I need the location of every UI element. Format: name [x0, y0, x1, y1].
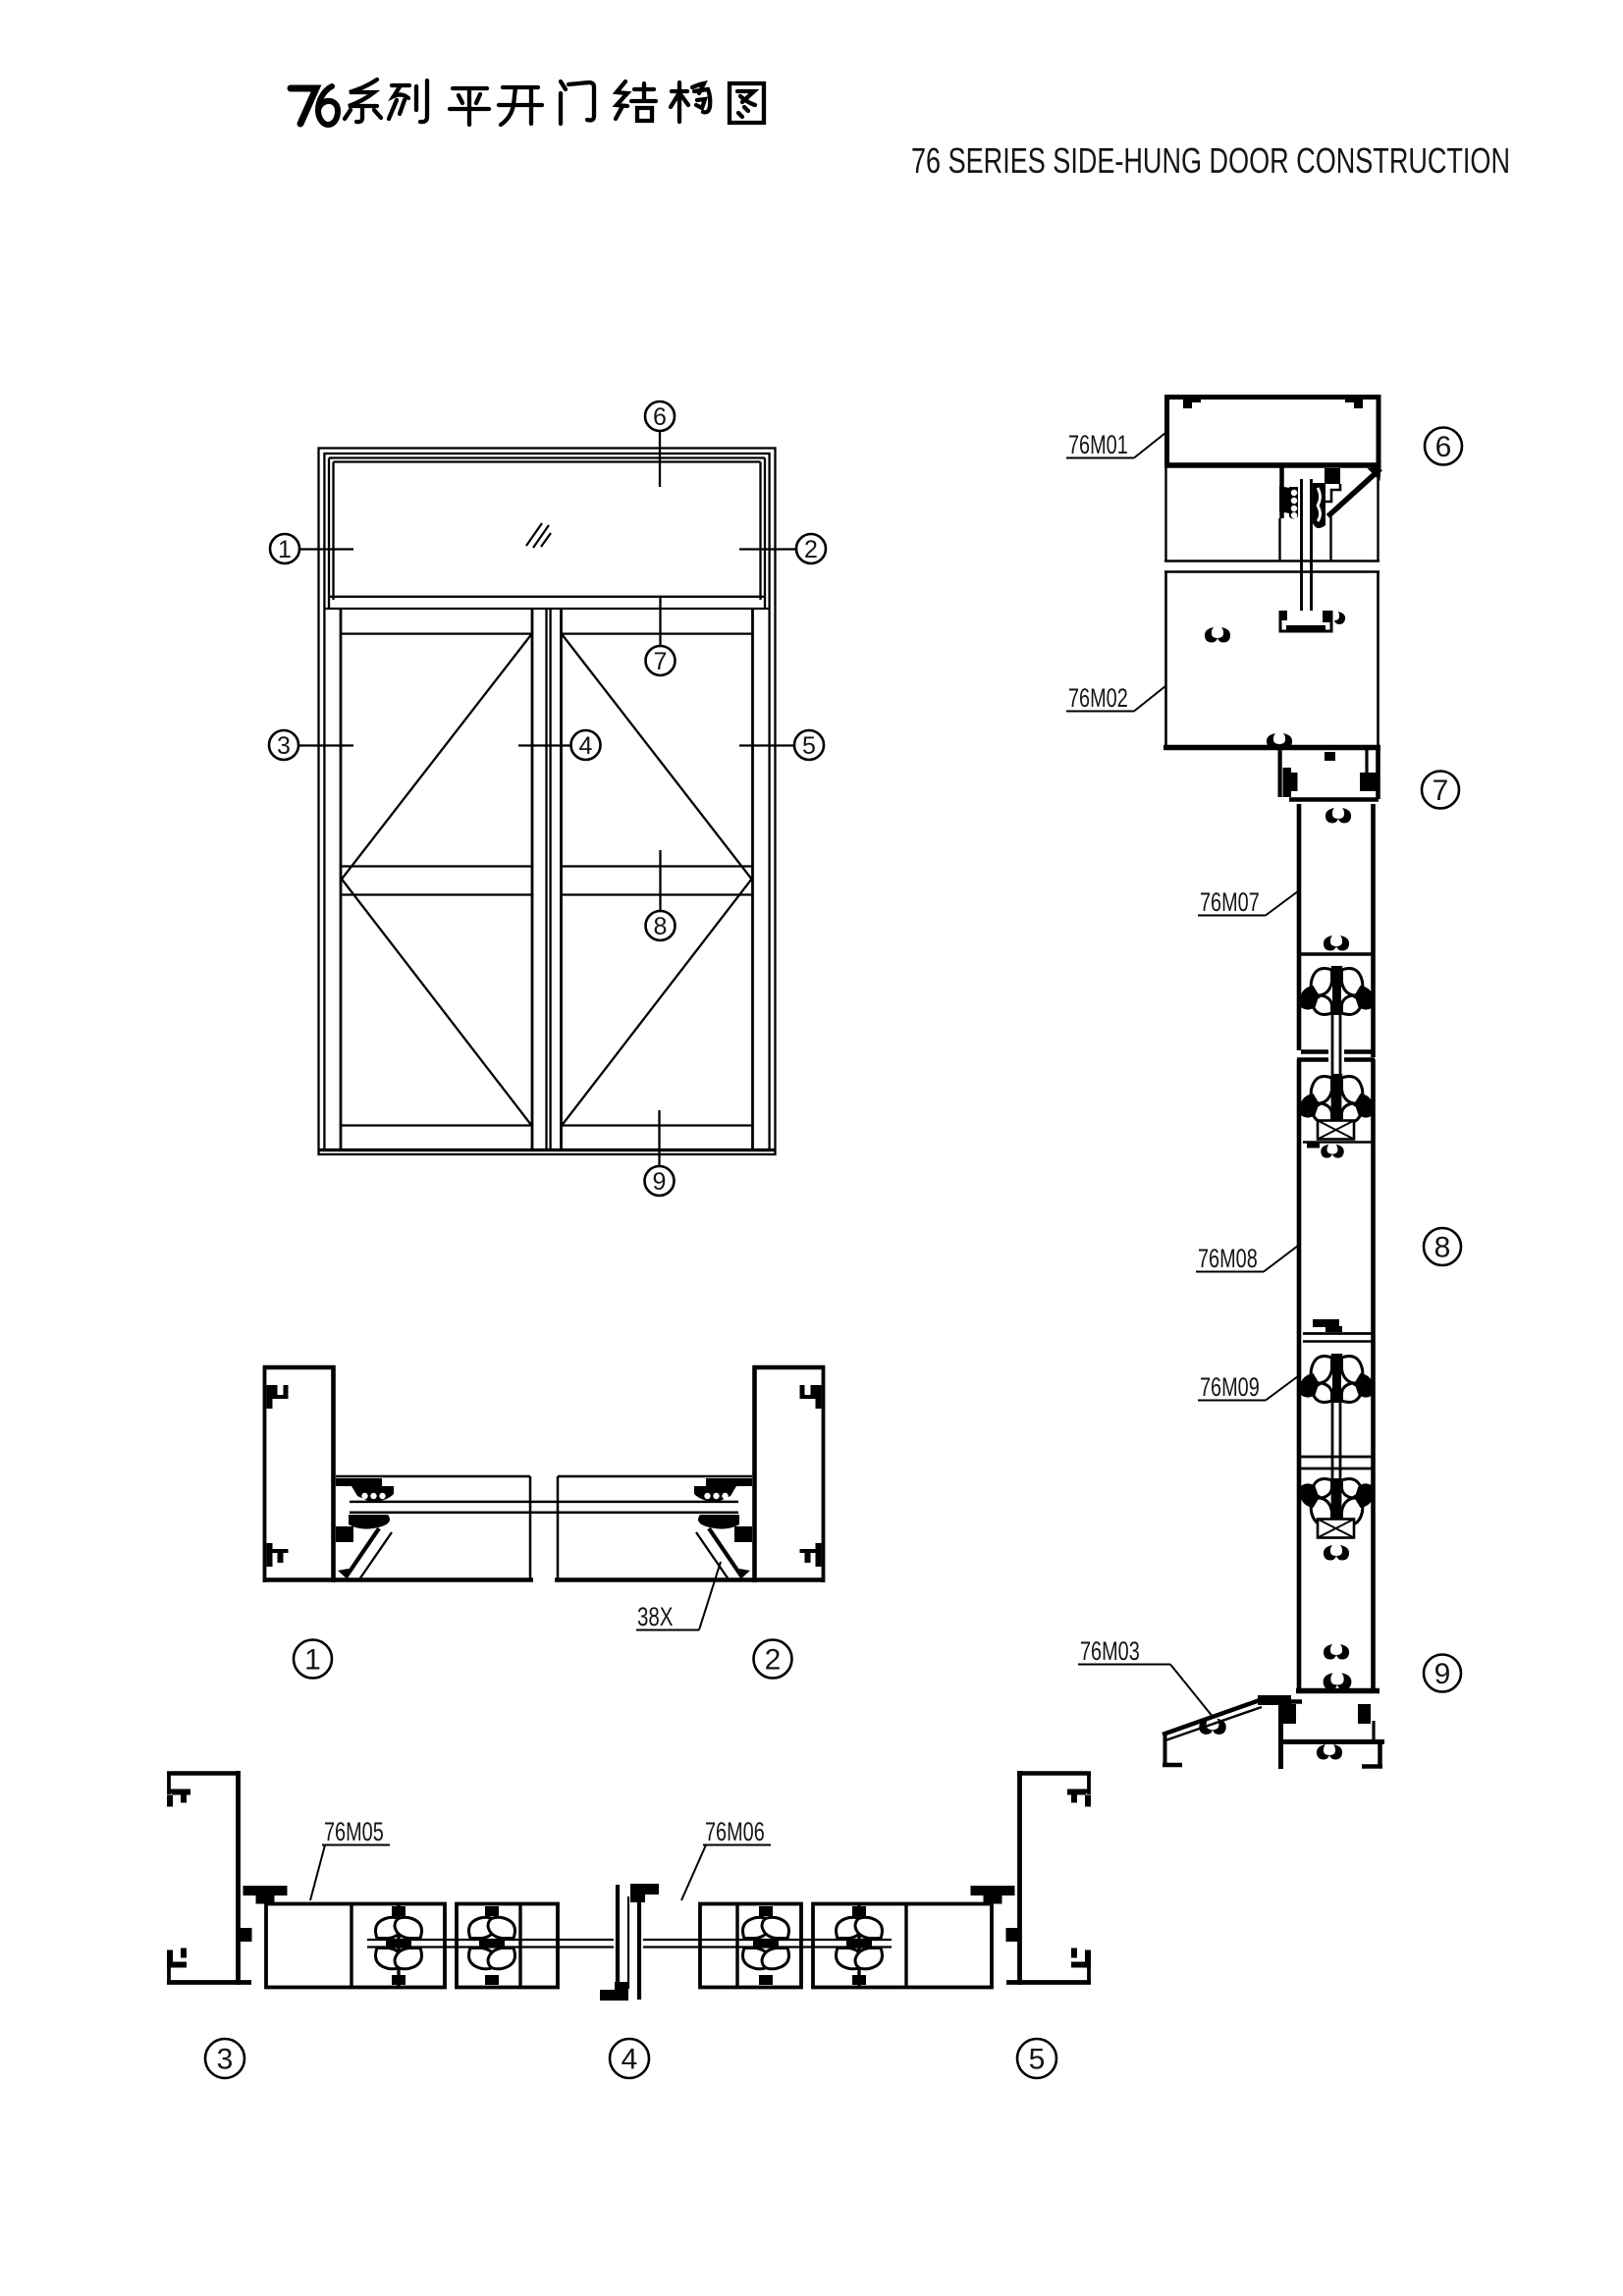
- svg-text:8: 8: [1434, 1232, 1451, 1264]
- svg-text:5: 5: [802, 732, 816, 760]
- svg-text:7: 7: [654, 648, 668, 675]
- svg-text:76M08: 76M08: [1198, 1244, 1258, 1273]
- svg-text:3: 3: [277, 732, 291, 760]
- svg-text:76M03: 76M03: [1080, 1636, 1140, 1666]
- svg-text:9: 9: [653, 1168, 667, 1196]
- svg-text:76 SERIES SIDE-HUNG DOOR CONST: 76 SERIES SIDE-HUNG DOOR CONSTRUCTION: [911, 140, 1510, 181]
- svg-text:1: 1: [278, 536, 292, 563]
- svg-text:76M02: 76M02: [1068, 683, 1128, 713]
- svg-text:4: 4: [579, 732, 593, 760]
- svg-text:38X: 38X: [637, 1602, 673, 1631]
- svg-text:3: 3: [217, 2044, 234, 2076]
- svg-text:8: 8: [654, 913, 668, 940]
- svg-text:9: 9: [1434, 1658, 1451, 1690]
- svg-text:76M01: 76M01: [1068, 430, 1128, 459]
- svg-text:1: 1: [304, 1644, 321, 1677]
- svg-text:2: 2: [804, 536, 818, 563]
- svg-text:4: 4: [622, 2044, 638, 2076]
- svg-text:76M07: 76M07: [1200, 887, 1260, 917]
- svg-text:7: 7: [1433, 774, 1449, 807]
- svg-text:6: 6: [653, 403, 667, 431]
- svg-text:5: 5: [1029, 2044, 1046, 2076]
- svg-text:76M05: 76M05: [324, 1817, 384, 1846]
- svg-text:76M09: 76M09: [1200, 1372, 1260, 1402]
- svg-text:76M06: 76M06: [705, 1817, 765, 1846]
- svg-text:2: 2: [765, 1644, 782, 1677]
- svg-text:6: 6: [1435, 431, 1452, 463]
